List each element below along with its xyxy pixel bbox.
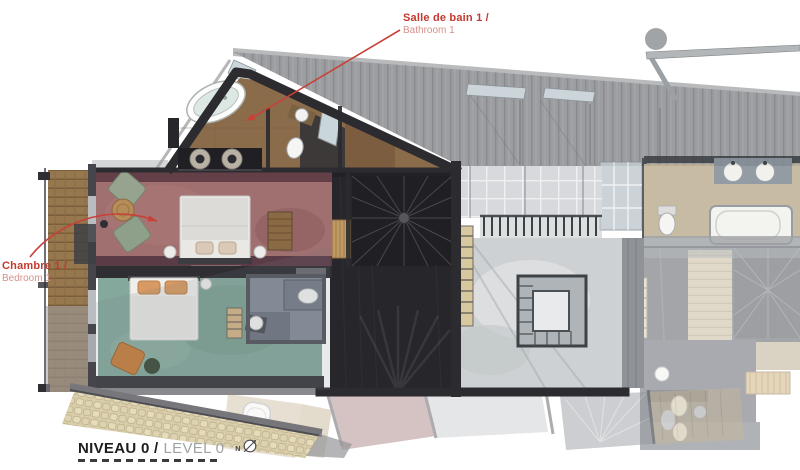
floor-plan-page: Salle de bain 1 / Bathroom 1 Chambre 1 /… [0,0,800,470]
compass-north-letter: N [235,446,240,453]
spiral-staircase [352,176,452,266]
compass-icon [241,437,259,455]
level-subtitle: LEVEL 0 [164,440,225,457]
compass: N [235,437,259,455]
window-left-2 [88,290,96,324]
balcony-door [74,224,96,264]
wardrobe-1 [268,212,292,250]
round-table [112,199,134,221]
bedroom-callout-title: Chambre 1 / [2,260,67,273]
bathroom-callout-subtitle: Bathroom 1 [403,25,489,37]
tree-marker [645,28,667,50]
bedroom-callout-subtitle: Bedroom 1 [2,273,67,285]
window-left-3 [88,334,96,362]
level-label: NIVEAU 0 / LEVEL 0 N [78,437,259,457]
bathroom-callout: Salle de bain 1 / Bathroom 1 [403,12,489,36]
square-stairwell [518,276,586,346]
bathroom-callout-title: Salle de bain 1 / [403,12,489,25]
floor-plan-drawing [0,0,800,470]
bedroom-callout: Chambre 1 / Bedroom 1 [2,260,67,284]
level-title: NIVEAU 0 / [78,440,159,457]
level-underline [78,459,218,462]
